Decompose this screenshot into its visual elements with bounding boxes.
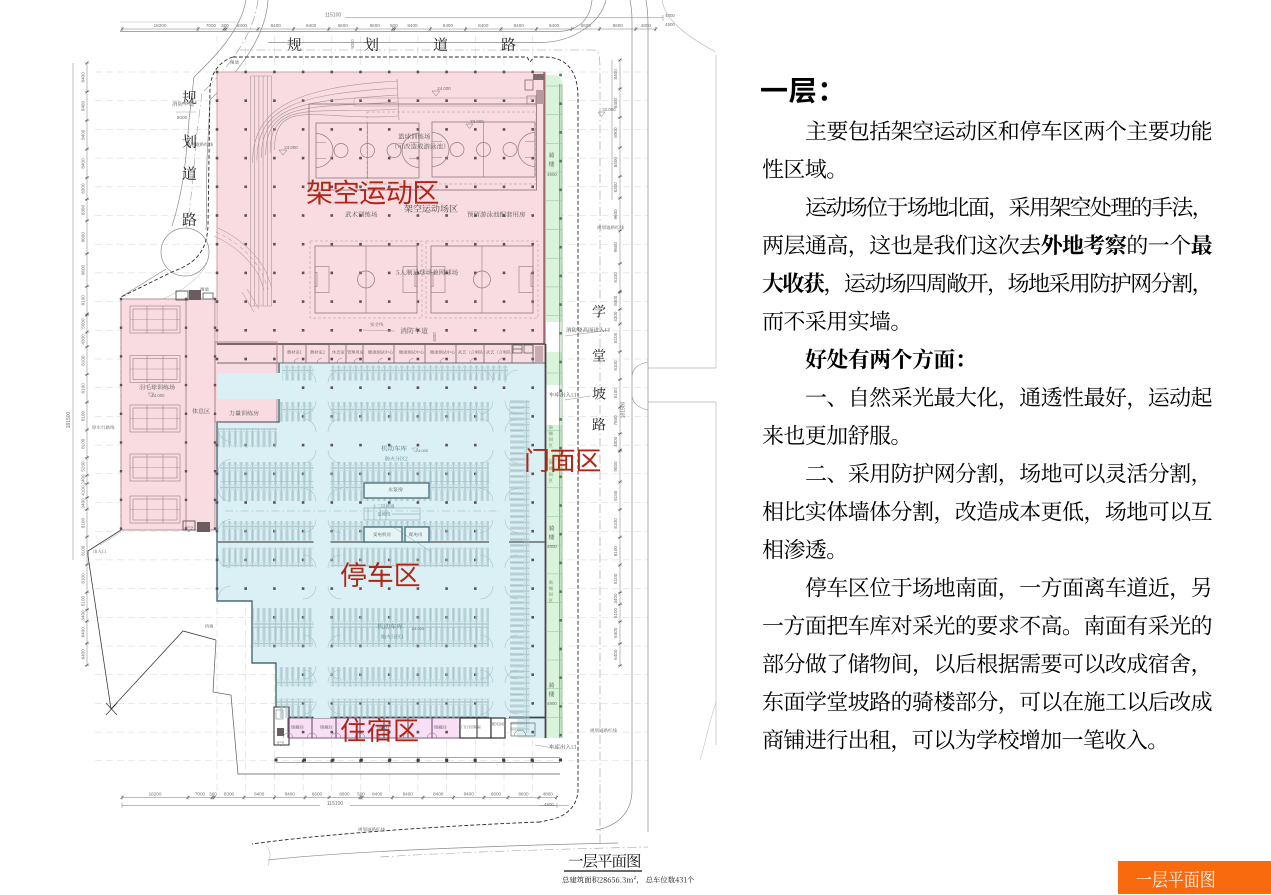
svg-text:4900: 4900 — [547, 544, 557, 549]
svg-text:5100: 5100 — [81, 595, 86, 606]
svg-text:4300: 4300 — [613, 311, 618, 322]
svg-text:9600: 9600 — [81, 232, 86, 243]
svg-text:6400: 6400 — [613, 627, 618, 638]
svg-text:8300: 8300 — [224, 791, 235, 796]
svg-text:9600: 9600 — [613, 242, 618, 253]
svg-text:4900: 4900 — [547, 172, 557, 177]
svg-text:3400: 3400 — [81, 610, 86, 621]
svg-text:8400: 8400 — [403, 791, 414, 796]
svg-text:18200: 18200 — [154, 23, 167, 28]
svg-text:8100: 8100 — [613, 388, 618, 399]
svg-text:181500: 181500 — [621, 401, 627, 418]
svg-text:8100: 8100 — [613, 546, 618, 557]
svg-text:8400: 8400 — [478, 23, 489, 28]
svg-text:8400: 8400 — [271, 23, 282, 28]
svg-text:8100: 8100 — [613, 518, 618, 529]
svg-text:8100: 8100 — [613, 573, 618, 584]
svg-text:6300: 6300 — [81, 183, 86, 194]
svg-text:32.000: 32.000 — [602, 107, 616, 112]
svg-text:8400: 8400 — [549, 23, 560, 28]
svg-text:7000: 7000 — [195, 791, 206, 796]
svg-text:8100: 8100 — [81, 573, 86, 584]
svg-text:181500: 181500 — [66, 411, 72, 428]
svg-text:8400: 8400 — [254, 791, 265, 796]
svg-text:8400: 8400 — [306, 23, 317, 28]
svg-text:8400: 8400 — [443, 23, 454, 28]
svg-text:8900: 8900 — [613, 127, 618, 138]
svg-text:4100: 4100 — [81, 485, 86, 496]
svg-text:500: 500 — [390, 23, 398, 28]
svg-text:6400: 6400 — [81, 627, 86, 638]
svg-text:4800: 4800 — [543, 791, 554, 796]
svg-text:8400: 8400 — [433, 791, 444, 796]
svg-text:8400: 8400 — [81, 158, 86, 169]
svg-text:33.000: 33.000 — [470, 119, 484, 124]
svg-text:9600: 9600 — [81, 264, 86, 275]
svg-text:8100: 8100 — [613, 272, 618, 283]
svg-text:8600: 8600 — [518, 791, 529, 796]
svg-text:8100: 8100 — [613, 360, 618, 371]
svg-text:18200: 18200 — [149, 791, 162, 796]
svg-text:500: 500 — [357, 791, 365, 796]
svg-text:24.000: 24.000 — [284, 145, 298, 150]
svg-text:5000: 5000 — [81, 318, 86, 329]
svg-text:24.000: 24.000 — [412, 626, 425, 631]
svg-text:7000: 7000 — [206, 23, 217, 28]
svg-text:5000: 5000 — [177, 115, 188, 120]
svg-text:8400: 8400 — [285, 791, 296, 796]
svg-text:8600: 8600 — [613, 23, 624, 28]
svg-text:115100: 115100 — [327, 801, 344, 807]
svg-text:8100: 8100 — [81, 518, 86, 529]
svg-text:5000: 5000 — [613, 295, 618, 306]
svg-text:4800: 4800 — [665, 13, 675, 18]
svg-text:8400: 8400 — [613, 157, 618, 168]
svg-text:9600: 9600 — [613, 209, 618, 220]
svg-text:24.000: 24.000 — [416, 448, 429, 453]
svg-text:8400: 8400 — [81, 129, 86, 140]
svg-text:8100: 8100 — [81, 383, 86, 394]
svg-text:9000: 9000 — [613, 461, 618, 472]
svg-text:4300: 4300 — [81, 334, 86, 345]
svg-text:8400: 8400 — [514, 23, 525, 28]
svg-text:8400: 8400 — [613, 69, 618, 80]
svg-text:8400: 8400 — [81, 101, 86, 112]
svg-text:8600: 8600 — [370, 23, 381, 28]
svg-text:8100: 8100 — [81, 438, 86, 449]
svg-text:7800: 7800 — [613, 415, 618, 426]
svg-text:8100: 8100 — [81, 355, 86, 366]
svg-text:6400: 6400 — [81, 649, 86, 660]
svg-text:24.000: 24.000 — [437, 86, 451, 91]
svg-text:300: 300 — [221, 23, 229, 28]
svg-text:8100: 8100 — [81, 545, 86, 556]
svg-text:2400: 2400 — [81, 474, 86, 485]
svg-text:8100: 8100 — [613, 490, 618, 501]
svg-text:6600: 6600 — [338, 23, 349, 28]
svg-text:6600: 6600 — [491, 791, 502, 796]
svg-text:8100: 8100 — [81, 295, 86, 306]
svg-text:5000: 5000 — [350, 39, 355, 49]
svg-text:4800: 4800 — [613, 436, 618, 447]
svg-text:8100: 8100 — [81, 411, 86, 422]
svg-text:8100: 8100 — [613, 332, 618, 343]
svg-text:8400: 8400 — [407, 23, 418, 28]
svg-text:115100: 115100 — [325, 13, 342, 19]
svg-text:6300: 6300 — [613, 182, 618, 193]
svg-text:8400: 8400 — [81, 72, 86, 83]
svg-text:4900: 4900 — [547, 701, 557, 706]
svg-text:3400: 3400 — [81, 498, 86, 509]
svg-text:4800: 4800 — [544, 802, 554, 807]
svg-text:4800: 4800 — [641, 23, 652, 28]
svg-text:8600: 8600 — [339, 791, 350, 796]
svg-text:8400: 8400 — [464, 791, 475, 796]
svg-text:6400: 6400 — [613, 649, 618, 660]
svg-text:300: 300 — [209, 791, 217, 796]
svg-text:5100: 5100 — [613, 607, 618, 618]
svg-text:8300: 8300 — [237, 23, 248, 28]
svg-text:6300: 6300 — [81, 205, 86, 216]
svg-text:8400: 8400 — [372, 791, 383, 796]
svg-text:5200: 5200 — [81, 461, 86, 472]
svg-text:6600: 6600 — [312, 791, 323, 796]
svg-text:4000: 4000 — [432, 332, 437, 342]
svg-text:3400: 3400 — [613, 593, 618, 604]
